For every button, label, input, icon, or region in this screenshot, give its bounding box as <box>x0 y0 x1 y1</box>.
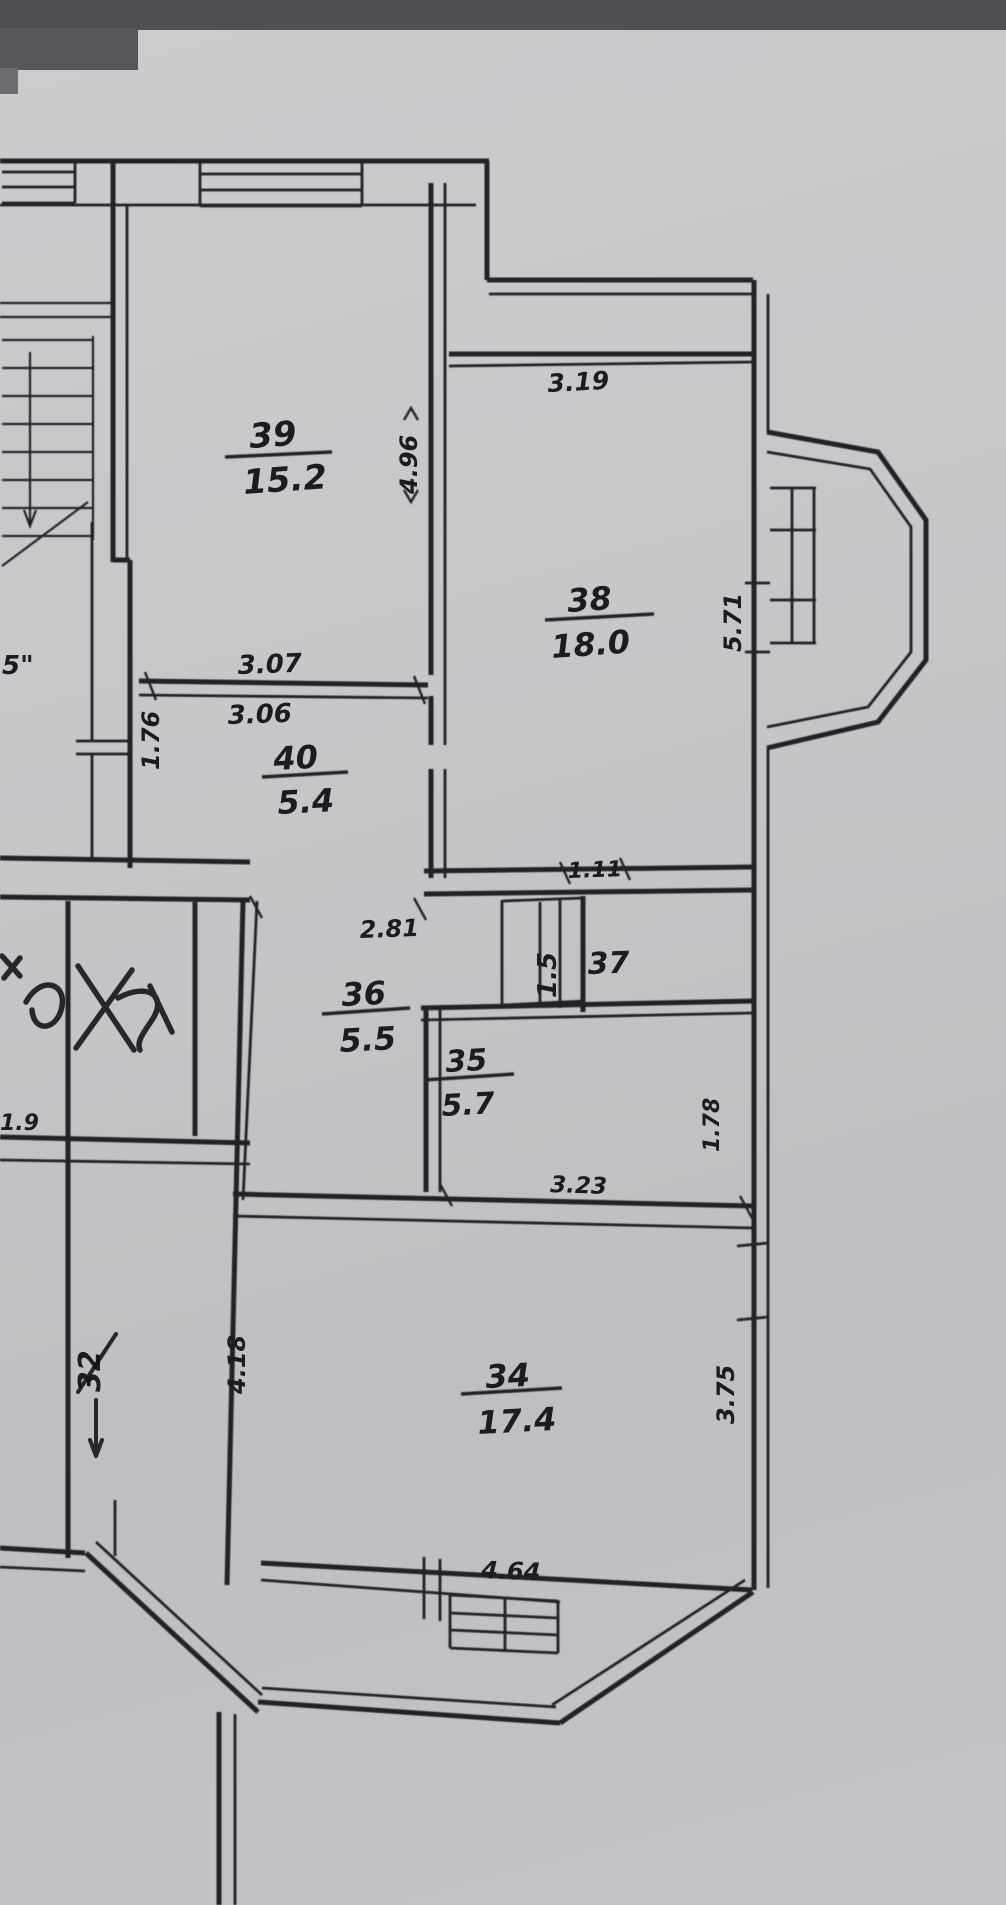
room-34-number: 34 <box>484 1356 530 1396</box>
dim-3-19: 3.19 <box>547 366 610 398</box>
room-label-40: 40 5.4 <box>271 738 335 822</box>
room-labels: 39 15.2 38 18.0 40 5.4 36 5.5 37 1.5 35 … <box>73 414 631 1442</box>
room-label-34: 34 17.4 <box>476 1356 557 1442</box>
room-39-area: 15.2 <box>242 457 328 503</box>
dim-1-76: 1.76 <box>137 711 165 770</box>
dim-3-23: 3.23 <box>550 1172 608 1200</box>
room-36-area: 5.5 <box>338 1019 397 1060</box>
dim-2-81: 2.81 <box>359 914 419 944</box>
room-label-36: 36 5.5 <box>338 974 397 1060</box>
room-35-area: 5.7 <box>441 1086 496 1124</box>
wall-lines-medium <box>0 161 911 1905</box>
floorplan-drawing: 39 15.2 38 18.0 40 5.4 36 5.5 37 1.5 35 … <box>0 0 1006 1905</box>
stair-direction-arrow <box>24 352 36 526</box>
staircase <box>0 303 113 566</box>
room-39-number: 39 <box>248 414 298 457</box>
scribble-crossout-left-room <box>2 956 172 1050</box>
room-37-number: 37 <box>587 946 630 982</box>
dim-3-75: 3.75 <box>712 1365 740 1424</box>
room-37-area: 1.5 <box>533 952 563 998</box>
dim-1-78: 1.78 <box>700 1098 725 1152</box>
dim-3-06: 3.06 <box>227 699 292 731</box>
wall-lines-heavy <box>0 161 926 1905</box>
dim-1-11: 1.11 <box>567 857 622 884</box>
dim-3-07: 3.07 <box>237 649 303 681</box>
dim-5-71: 5.71 <box>719 593 747 652</box>
dim-5-inch-cut: 5" <box>2 651 34 681</box>
dim-1-9-cut: 1.9 <box>0 1111 39 1136</box>
room-36-number: 36 <box>340 974 386 1014</box>
room-38-area: 18.0 <box>550 623 631 666</box>
room-40-number: 40 <box>271 738 318 778</box>
dim-4-96: 4.96 <box>395 435 423 495</box>
dim-4-18: 4.18 <box>223 1335 251 1395</box>
room-label-39: 39 15.2 <box>242 414 328 503</box>
room-40-area: 5.4 <box>276 781 335 822</box>
room-label-38: 38 18.0 <box>550 579 631 666</box>
room-38-number: 38 <box>566 579 613 620</box>
dim-4-64: 4.64 <box>480 1556 541 1586</box>
room-label-35: 35 5.7 <box>441 1043 496 1124</box>
room-35-number: 35 <box>445 1043 489 1080</box>
pen-scribbles <box>2 956 172 1456</box>
scanned-floorplan-photo: 39 15.2 38 18.0 40 5.4 36 5.5 37 1.5 35 … <box>0 0 1006 1905</box>
scribble-arrow-down <box>90 1400 102 1456</box>
room-34-area: 17.4 <box>476 1400 557 1442</box>
